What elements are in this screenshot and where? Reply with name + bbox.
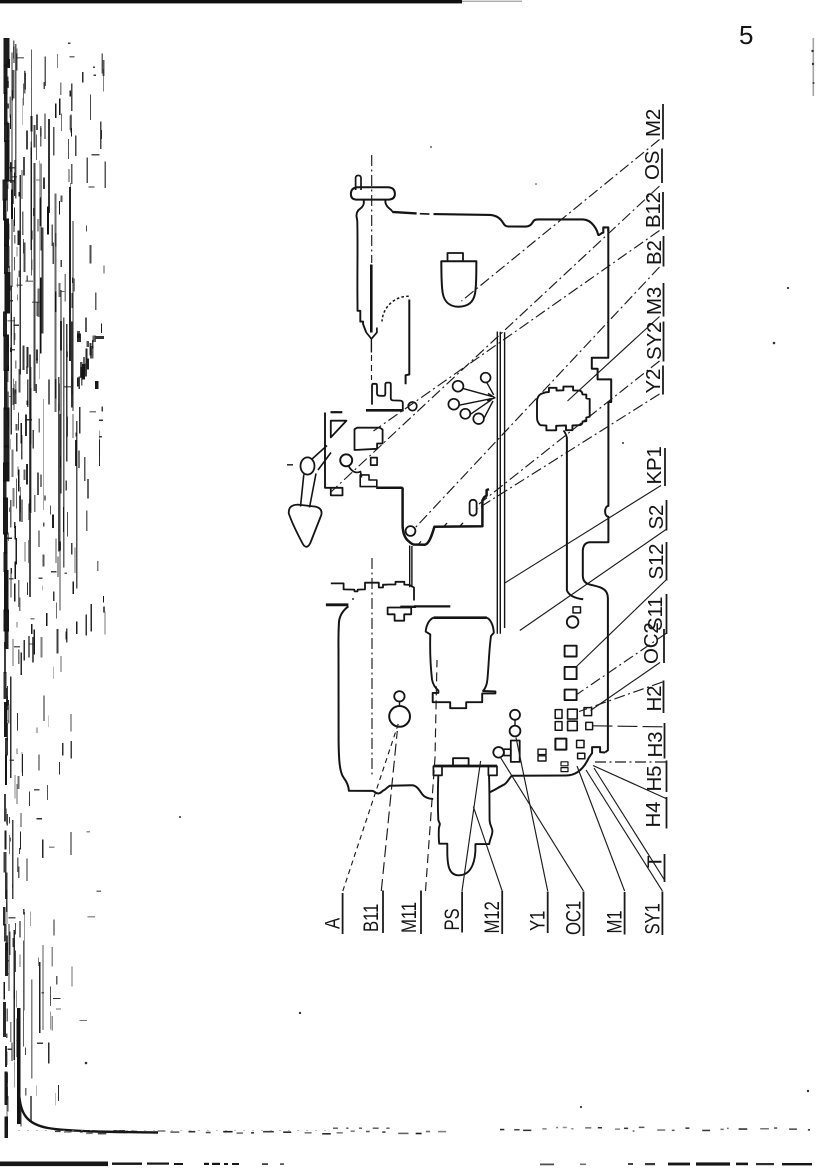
svg-text:S2: S2 <box>645 505 668 530</box>
svg-text:A: A <box>322 918 345 929</box>
svg-text:KP1: KP1 <box>643 446 666 484</box>
svg-text:B11: B11 <box>360 904 383 932</box>
svg-text:B12: B12 <box>642 192 665 228</box>
svg-text:M1: M1 <box>604 911 627 934</box>
svg-text:PS: PS <box>441 908 464 930</box>
svg-text:H3: H3 <box>644 732 667 758</box>
svg-text:T: T <box>644 855 667 868</box>
svg-text:OC1: OC1 <box>563 901 586 935</box>
svg-text:OS: OS <box>641 151 664 180</box>
svg-text:H5: H5 <box>643 766 666 792</box>
svg-text:H4: H4 <box>642 802 665 828</box>
svg-text:Y2: Y2 <box>642 369 665 394</box>
svg-text:5: 5 <box>739 20 753 50</box>
svg-text:M12: M12 <box>481 901 504 933</box>
svg-text:H2: H2 <box>643 686 666 712</box>
svg-text:B2: B2 <box>643 240 666 265</box>
svg-text:OC2: OC2 <box>640 622 663 664</box>
svg-text:Y1: Y1 <box>527 911 550 931</box>
svg-text:S12: S12 <box>645 544 668 580</box>
svg-text:M3: M3 <box>643 287 666 315</box>
svg-text:M2: M2 <box>642 109 665 137</box>
svg-text:SY2: SY2 <box>643 322 666 360</box>
svg-text:M11: M11 <box>398 902 421 933</box>
